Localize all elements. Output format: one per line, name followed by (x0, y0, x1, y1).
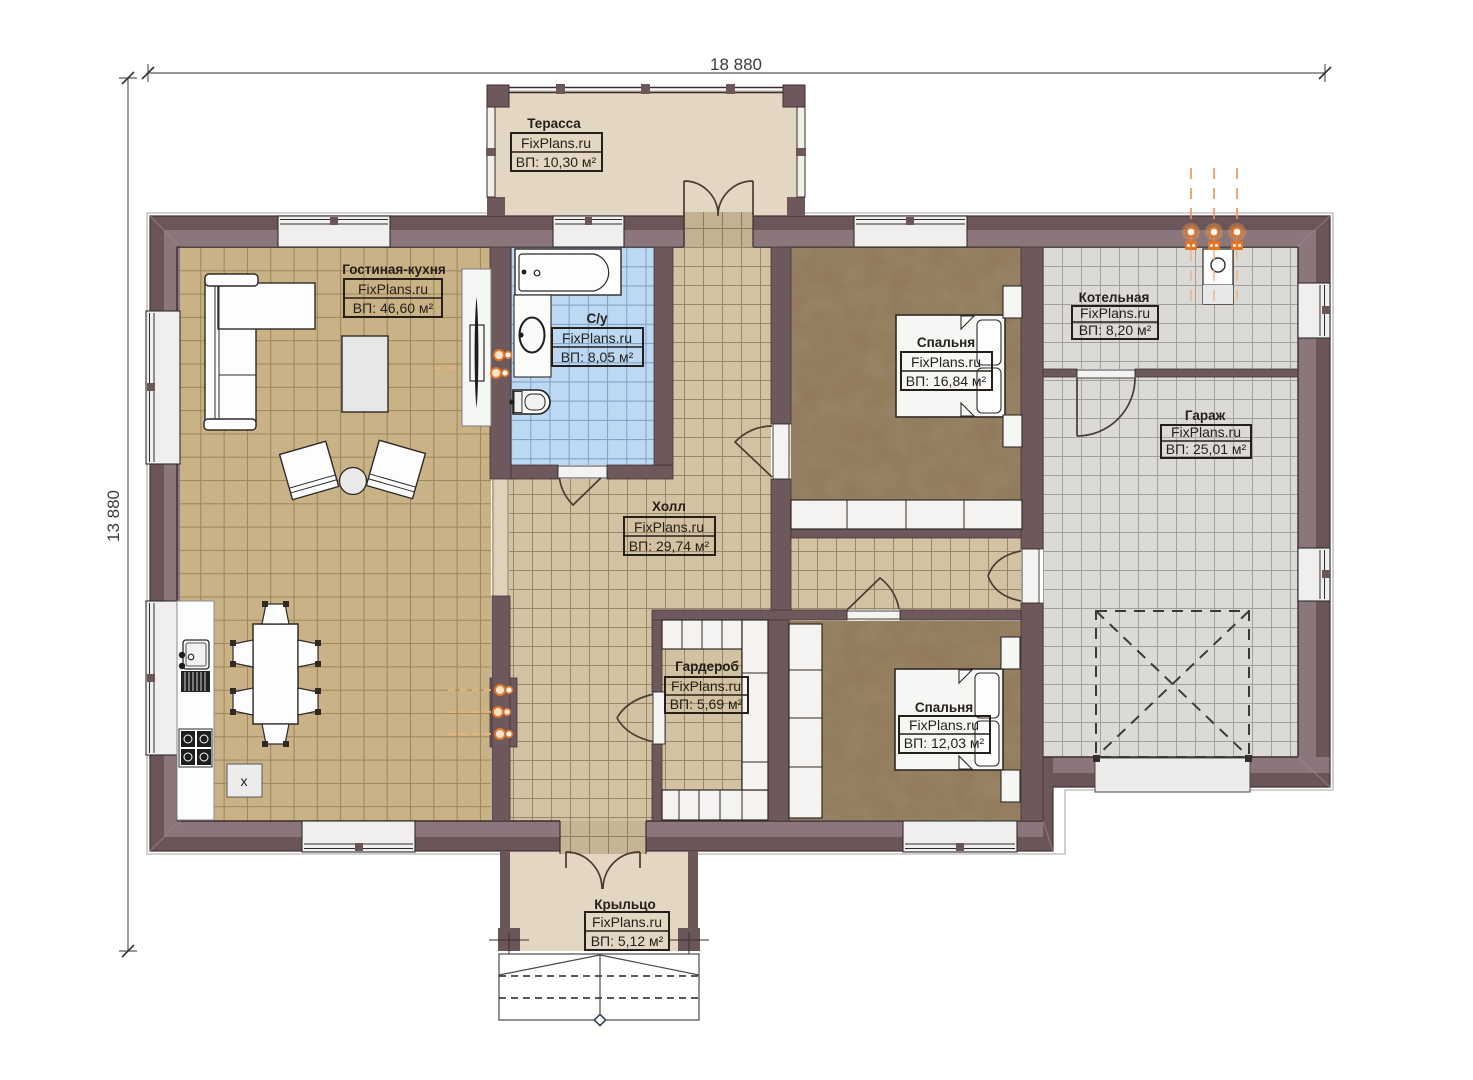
svg-text:x: x (241, 773, 248, 789)
svg-text:Холл: Холл (652, 499, 686, 514)
svg-text:ВП: 5,69 м²: ВП: 5,69 м² (670, 696, 743, 712)
svg-text:ВП: 12,03 м²: ВП: 12,03 м² (904, 735, 985, 751)
svg-text:Терасса: Терасса (527, 116, 581, 131)
svg-text:FixPlans.ru: FixPlans.ru (562, 330, 632, 346)
svg-text:ВП: 46,60 м²: ВП: 46,60 м² (353, 300, 434, 316)
svg-text:ВП: 25,01 м²: ВП: 25,01 м² (1166, 441, 1247, 457)
svg-text:FixPlans.ru: FixPlans.ru (671, 678, 741, 694)
svg-text:13 880: 13 880 (104, 490, 123, 542)
svg-text:С/у: С/у (586, 311, 608, 326)
svg-text:FixPlans.ru: FixPlans.ru (1171, 424, 1241, 440)
svg-text:FixPlans.ru: FixPlans.ru (911, 354, 981, 370)
svg-text:Гараж: Гараж (1185, 408, 1226, 423)
svg-text:18 880: 18 880 (710, 55, 762, 74)
svg-text:ВП: 16,84 м²: ВП: 16,84 м² (906, 373, 987, 389)
svg-text:ВП: 8,20 м²: ВП: 8,20 м² (1079, 322, 1152, 338)
svg-text:FixPlans.ru: FixPlans.ru (592, 914, 662, 930)
svg-text:ВП: 5,12 м²: ВП: 5,12 м² (591, 933, 664, 949)
svg-text:ВП: 29,74 м²: ВП: 29,74 м² (629, 538, 710, 554)
svg-text:Спальня: Спальня (917, 335, 975, 350)
svg-text:Спальня: Спальня (915, 700, 973, 715)
svg-text:FixPlans.ru: FixPlans.ru (634, 519, 704, 535)
svg-text:FixPlans.ru: FixPlans.ru (1080, 305, 1150, 321)
svg-text:Котельная: Котельная (1079, 290, 1150, 305)
svg-text:ВП: 8,05 м²: ВП: 8,05 м² (561, 349, 634, 365)
svg-text:Гардероб: Гардероб (675, 659, 739, 674)
svg-text:ВП: 10,30 м²: ВП: 10,30 м² (516, 154, 597, 170)
svg-text:Крыльцо: Крыльцо (594, 897, 655, 912)
svg-text:Гостиная-кухня: Гостиная-кухня (342, 262, 445, 277)
svg-text:FixPlans.ru: FixPlans.ru (909, 717, 979, 733)
svg-text:FixPlans.ru: FixPlans.ru (358, 281, 428, 297)
svg-text:FixPlans.ru: FixPlans.ru (521, 135, 591, 151)
